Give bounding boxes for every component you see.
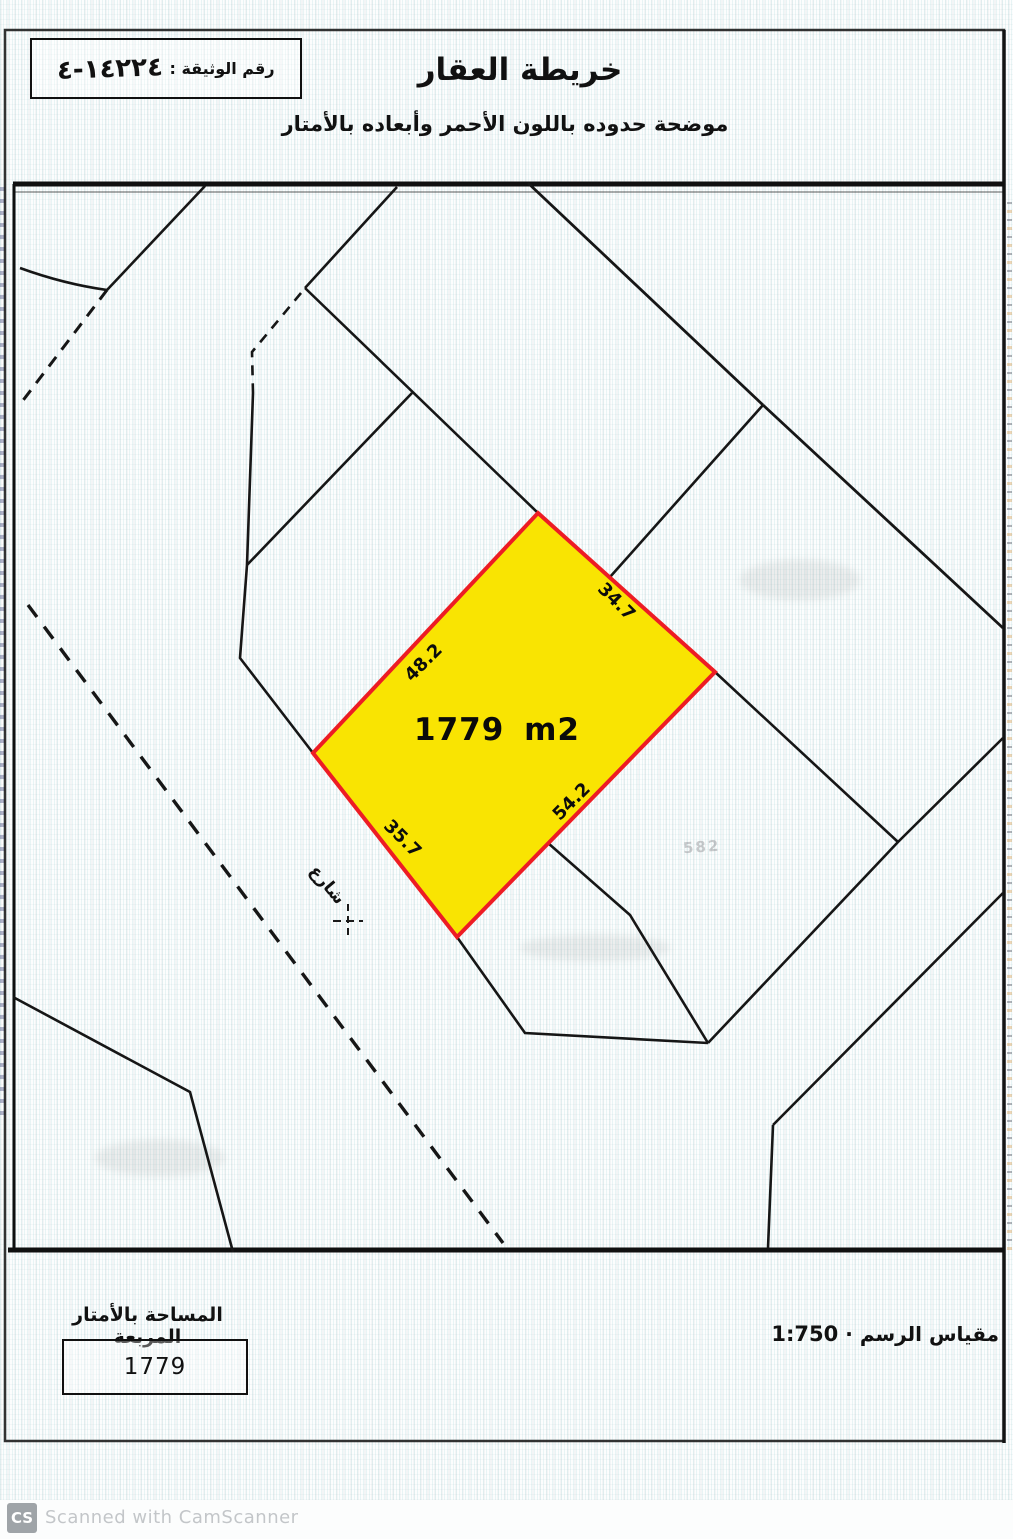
scale-label: مقياس الرسم xyxy=(860,1322,999,1346)
boundary-line xyxy=(763,405,1003,628)
boundary-line xyxy=(305,187,397,288)
boundary-line xyxy=(548,843,708,1043)
boundary-line xyxy=(457,937,708,1043)
page-subtitle: موضحة حدوده باللون الأحمر وأبعاده بالأمت… xyxy=(205,112,805,136)
scanned-property-map-page: رقم الوثيقة : ١٤٢٢٤-٤ خريطة العقار موضحة… xyxy=(0,0,1013,1539)
boundary-line xyxy=(20,268,107,290)
boundary-line-dashed xyxy=(252,293,301,393)
boundary-line xyxy=(305,288,538,513)
map-scale: مقياس الرسم · 1:750 xyxy=(771,1322,999,1346)
parcel-area-label: 1779 m2 xyxy=(397,712,597,748)
boundary-line-dashed xyxy=(18,290,107,407)
camscanner-logo-icon: CS xyxy=(7,1503,37,1533)
boundary-line xyxy=(107,186,205,290)
boundary-line xyxy=(610,405,763,577)
scale-separator: · xyxy=(845,1322,853,1346)
scale-value: 1:750 xyxy=(771,1322,838,1346)
boundary-line xyxy=(773,893,1003,1125)
boundary-line xyxy=(13,997,233,1252)
bleed-through-number: 582 xyxy=(682,837,720,858)
document-number-box: رقم الوثيقة : ١٤٢٢٤-٤ xyxy=(30,38,302,99)
boundary-line xyxy=(708,738,1003,1043)
boundary-line xyxy=(247,393,412,565)
document-number-label: رقم الوثيقة : xyxy=(169,59,274,78)
document-number-value: ١٤٢٢٤-٤ xyxy=(57,52,164,86)
page-title: خريطة العقار xyxy=(280,52,760,88)
camscanner-watermark-text: Scanned with CamScanner xyxy=(45,1507,299,1528)
boundary-line xyxy=(240,393,313,753)
boundary-line xyxy=(528,183,763,405)
boundary-line xyxy=(715,672,898,842)
area-value: 1779 xyxy=(124,1354,187,1380)
boundary-line xyxy=(768,1125,773,1248)
area-value-box: 1779 xyxy=(62,1339,248,1395)
